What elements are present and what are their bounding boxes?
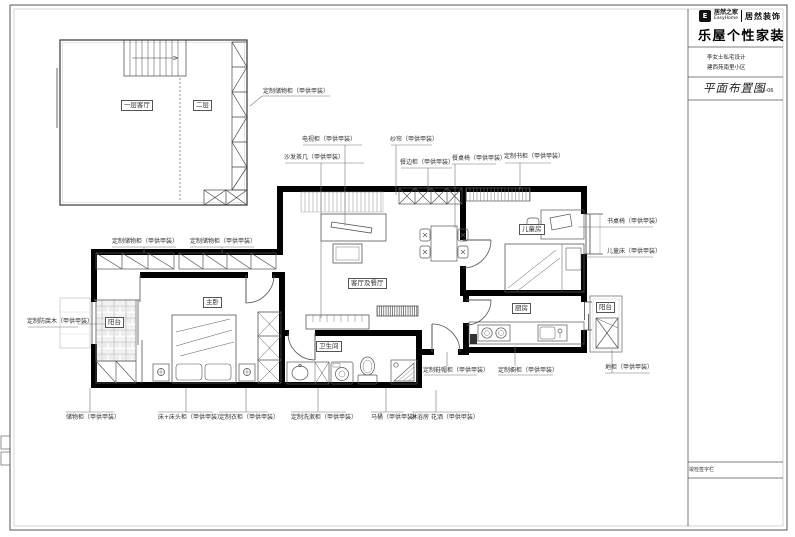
- nightstands: [153, 364, 255, 381]
- master-bed: [172, 315, 236, 383]
- callout-vanity: 定制洗漱柜（甲供甲装）: [291, 414, 357, 422]
- title-block-footer-note: 竣检签字栏: [689, 466, 714, 473]
- brand-logo-icon: E: [699, 10, 711, 22]
- brand-division: 居然装饰: [745, 11, 781, 22]
- callout-loft-storage: 定制储物柜（甲供甲装）: [263, 88, 329, 96]
- balcony-left-deck: [96, 300, 136, 361]
- room-label-kitchen: 厨房: [512, 303, 531, 314]
- room-label-balcony-right: 阳台: [596, 302, 615, 313]
- room-label-kids-room: 儿童房: [519, 224, 545, 235]
- curtain: [301, 192, 383, 212]
- wardrobe: [258, 312, 281, 383]
- room-label-loft-second: 二层: [193, 100, 212, 111]
- callout-kids-bed: 儿童床（甲供甲装）: [607, 248, 661, 256]
- tv-cabinet: [321, 214, 386, 241]
- staircase: [124, 40, 186, 76]
- kids-bookcase: [466, 188, 530, 201]
- stove: [478, 325, 510, 341]
- brand-title: 乐屋个性家装: [698, 25, 785, 44]
- sink: [538, 325, 567, 341]
- callout-bed-nightstands: 床+床头柜（甲供甲装）: [158, 414, 223, 422]
- walls: [91, 186, 587, 388]
- callout-shoe-cabinet: 定制鞋帽柜（甲供甲装）: [423, 367, 489, 375]
- room-label-balcony-left: 阳台: [105, 317, 124, 328]
- loft-x-cabinet: [204, 190, 247, 205]
- callout-storage-2: 定制储物柜（甲供甲装）: [190, 238, 256, 246]
- callout-storage-bottom: 储物柜（甲供甲装）: [66, 414, 120, 422]
- callout-kitchen-cabinets: 定制橱柜（甲供甲装）: [498, 367, 558, 375]
- brand-logo: E 居然之家 EasyHome 居然装饰: [699, 10, 781, 22]
- logo-divider: [741, 10, 742, 22]
- room-label-bathroom: 卫生间: [316, 341, 342, 352]
- shoe-cabinet: [377, 306, 418, 316]
- kids-bed: [505, 244, 584, 292]
- callout-bookcase: 定制书柜（甲供甲装）: [504, 153, 564, 161]
- callout-sideboard: 餐边柜（甲供甲装）: [400, 159, 454, 167]
- callout-tv-cabinet: 电视柜（甲供甲装）: [302, 136, 356, 144]
- floor-plan-drawing: [0, 0, 795, 537]
- sofa: [306, 315, 369, 329]
- balcony-left-cabinets: [96, 361, 136, 383]
- room-label-loft-living: 一层客厅: [121, 100, 153, 111]
- callout-sofa-tea-table: 沙发茶几（甲供甲装）: [284, 154, 344, 162]
- callout-storage-1: 定制储物柜（甲供甲装）: [112, 238, 178, 246]
- room-label-living-dining: 客厅及餐厅: [348, 278, 387, 289]
- balcony-slider: [138, 300, 142, 383]
- drawing-title: 平面布置图: [703, 80, 766, 96]
- callout-floor-cabinet: 地柜（甲供甲装）: [605, 364, 653, 372]
- floor-plan-sheet: 一层客厅 二层 客厅及餐厅 儿童房 主卧 阳台 卫生间 厨房 阳台 定制储物柜（…: [0, 0, 795, 537]
- project-line-1: 李女士私宅设计: [707, 53, 746, 61]
- bathroom-vanity: [287, 362, 329, 384]
- project-line-2: 建西苑南里小区: [707, 63, 746, 71]
- callout-desk-chair: 书桌椅（甲供甲装）: [607, 218, 661, 226]
- callout-wardrobe: 定制衣柜（甲供甲装）: [219, 414, 279, 422]
- hallway-storage-cabinets: [96, 253, 276, 269]
- callout-dining-set: 餐桌椅（甲供甲装）: [452, 155, 506, 163]
- callout-deck-wood: 定制防腐木（甲供甲装）: [27, 318, 93, 326]
- drawing-number: LI-06: [761, 88, 773, 94]
- balcony-right-cabinet: [596, 318, 618, 348]
- toilet: [358, 357, 377, 384]
- bedroom-closet-wall: [94, 275, 140, 302]
- brand-name-en: EasyHome: [714, 16, 738, 22]
- room-label-master-bedroom: 主卧: [203, 297, 222, 308]
- callout-shower: 淋浴房 花洒（甲供甲装）: [411, 414, 479, 422]
- loft-plan: [57, 40, 247, 205]
- loft-cabinet: [232, 42, 247, 190]
- callout-sheer-curtain: 纱帘（甲供甲装）: [390, 136, 438, 144]
- tea-table: [333, 244, 362, 263]
- shower: [391, 360, 417, 384]
- washing-machine: [331, 362, 353, 384]
